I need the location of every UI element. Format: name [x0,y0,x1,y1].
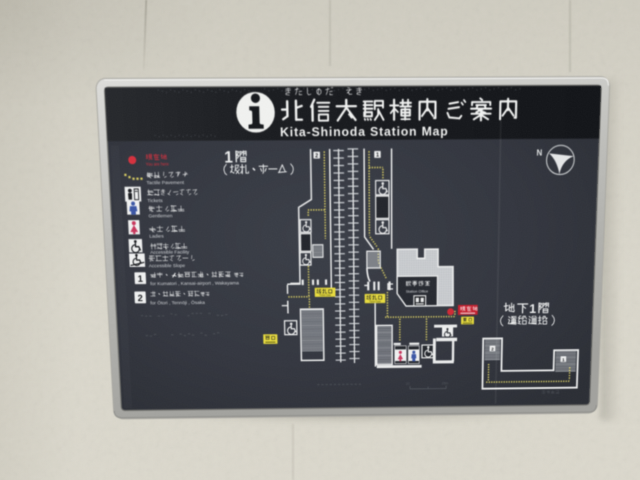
svg-text:Station Office: Station Office [406,289,429,294]
svg-text:10: 10 [406,382,410,386]
svg-text:Gentlemen: Gentlemen [148,214,172,220]
svg-text:Tickets: Tickets [147,198,163,204]
svg-text:Accessible Facility: Accessible Facility [150,250,190,256]
svg-text:1: 1 [529,301,537,316]
svg-text:1: 1 [224,149,233,167]
svg-text:for Ōtori , Tennōji , Ōsaka: for Ōtori , Tennōji , Ōsaka [150,299,205,306]
svg-text:1: 1 [562,357,565,362]
svg-text:2: 2 [315,153,318,159]
svg-text:Ticket Gate: Ticket Gate [369,300,381,303]
svg-text:Ticket Gate: Ticket Gate [319,294,331,297]
svg-text:Tactile Pavement: Tactile Pavement [146,180,184,186]
svg-text:Ladies: Ladies [149,234,164,240]
svg-text:Accessible Slope: Accessible Slope [149,263,186,269]
svg-text:Kita-Shinoda Station Map: Kita-Shinoda Station Map [280,123,449,139]
svg-text:You are here: You are here [146,161,170,166]
svg-text:15m: 15m [442,382,449,386]
svg-text:for Kumatori , Kansai-airport: for Kumatori , Kansai-airport , Wakayama [150,281,239,287]
svg-text:1: 1 [138,274,144,284]
svg-text:2: 2 [491,347,494,352]
svg-text:N: N [536,148,542,158]
svg-text:1: 1 [376,153,379,159]
svg-text:2: 2 [137,293,143,303]
